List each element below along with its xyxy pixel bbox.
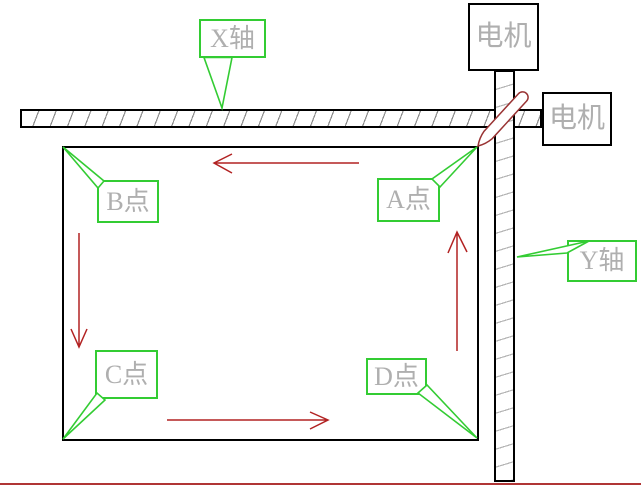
x-axis-label: X轴 <box>210 26 255 52</box>
diagram-canvas: 电机 电机 X轴 Y轴 A点 B点 C点 D点 <box>0 0 641 486</box>
point-b-label: B点 <box>106 189 149 215</box>
callout-point-a: A点 <box>377 178 440 222</box>
x-axis-rail <box>20 109 542 128</box>
motor-top-label: 电机 <box>475 23 531 51</box>
motor-right-label: 电机 <box>549 105 605 133</box>
point-a-label: A点 <box>386 187 431 213</box>
callout-x-axis: X轴 <box>199 19 266 58</box>
y-axis-rail <box>494 70 515 482</box>
y-axis-label: Y轴 <box>580 248 625 274</box>
callout-point-b: B点 <box>97 180 159 223</box>
motor-right-box: 电机 <box>542 92 612 146</box>
ground-line <box>0 483 641 485</box>
motor-top-box: 电机 <box>468 3 539 71</box>
point-d-label: D点 <box>374 364 419 390</box>
callout-point-c: C点 <box>95 350 158 399</box>
callout-point-d: D点 <box>366 358 427 395</box>
x-axis-leader <box>204 58 232 109</box>
point-c-label: C点 <box>105 362 148 388</box>
callout-y-axis: Y轴 <box>567 240 637 282</box>
